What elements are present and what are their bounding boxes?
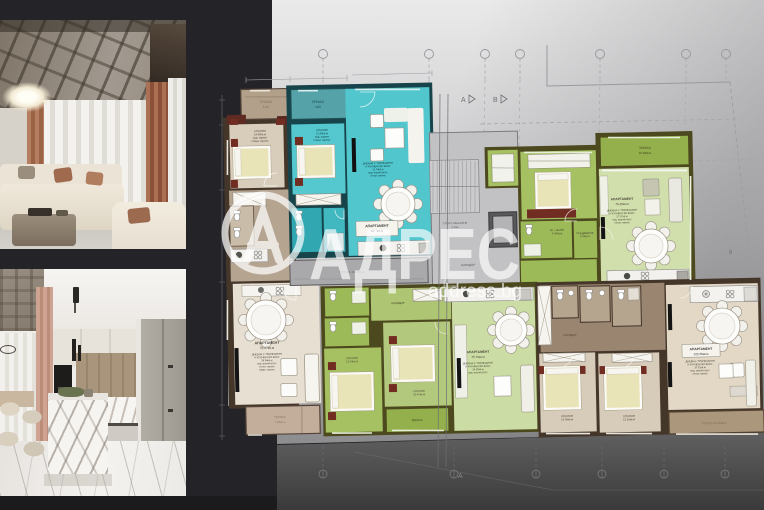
svg-text:таван: латекс: таван: латекс [259,368,275,371]
svg-text:КОРИДОР: КОРИДОР [563,333,576,337]
svg-text:ТЕРАСА: ТЕРАСА [411,418,422,422]
svg-text:под: гранитогрес: под: гранитогрес [468,371,488,374]
svg-text:стени: латекс: стени: латекс [370,174,386,177]
svg-text:10.48кв.м: 10.48кв.м [639,151,652,155]
svg-text:4.04кв.м: 4.04кв.м [552,231,563,235]
svg-text:14.05кв.м: 14.05кв.м [561,417,573,421]
svg-text:B: B [493,97,498,104]
svg-text:11.43кв.м: 11.43кв.м [346,359,358,363]
svg-text:76.27кв.м: 76.27кв.м [260,346,275,350]
svg-text:76.26кв.м: 76.26кв.м [615,202,628,206]
svg-text:стени: латекс: стени: латекс [614,221,630,224]
svg-text:13.47кв.м: 13.47кв.м [413,392,425,396]
svg-text:4.55: 4.55 [315,105,321,109]
svg-text:ТЕРАСА: ТЕРАСА [260,100,273,104]
svg-text:АПАРТАМЕНТ: АПАРТАМЕНТ [690,347,713,351]
svg-text:стени: латекс: стени: латекс [252,140,269,143]
svg-text:АПАРТАМЕНТ: АПАРТАМЕНТ [611,197,634,201]
svg-text:стени: латекс: стени: латекс [692,372,708,375]
svg-text:КОРИДОР: КОРИДОР [391,301,404,305]
svg-text:А: А [458,473,463,480]
svg-text:address.bg: address.bg [428,281,522,302]
svg-text:7.95кв.м: 7.95кв.м [274,420,285,424]
svg-text:ТЕРАСА: ТЕРАСА [312,100,325,104]
svg-text:АПАРТАМЕНТ: АПАРТАМЕНТ [255,341,281,346]
svg-text:ТЕРАСА: ТЕРАСА [639,146,651,150]
svg-text:A: A [461,97,466,104]
svg-text:ТЕРАСА: ТЕРАСА [274,415,286,419]
svg-text:АПАРТАМЕНТ: АПАРТАМЕНТ [467,350,490,354]
svg-text:122.26кв.м: 122.26кв.м [693,352,708,356]
svg-text:13.25кв.м: 13.25кв.м [623,417,635,421]
svg-text:5.45: 5.45 [263,105,269,109]
svg-text:75.76кв.м: 75.76кв.м [471,355,484,359]
svg-text:ТЕРАСА 10.15кв.м: ТЕРАСА 10.15кв.м [702,421,727,426]
svg-text:стени: латекс: стени: латекс [314,139,331,142]
svg-text:5.04кв.м: 5.04кв.м [580,235,590,238]
